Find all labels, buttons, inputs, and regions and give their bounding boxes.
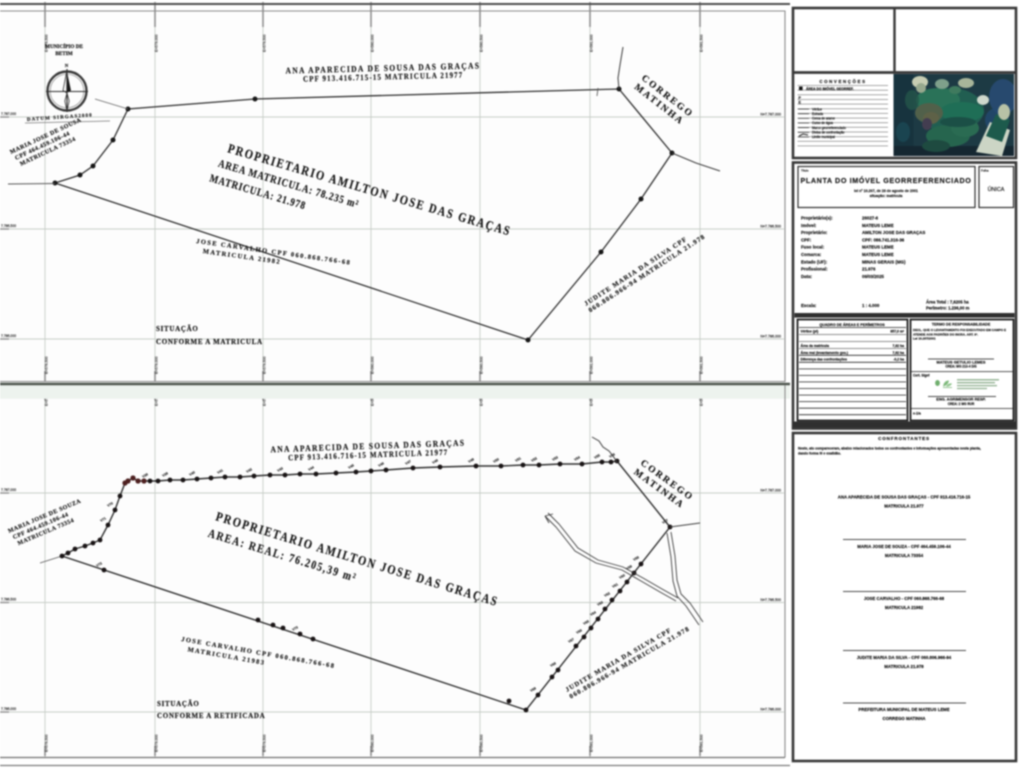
svg-text:E=579.500: E=579.500 <box>263 357 267 375</box>
svg-text:-0,2 ha: -0,2 ha <box>893 357 904 361</box>
svg-text:Imóvel:: Imóvel: <box>801 223 817 228</box>
svg-text:Cert. Sigef: Cert. Sigef <box>913 373 930 377</box>
svg-text:MATRICULA 21.978: MATRICULA 21.978 <box>884 664 924 669</box>
svg-text:E=580.500: E=580.500 <box>480 357 484 375</box>
svg-text:Marco georreferenciado: Marco georreferenciado <box>812 126 846 130</box>
svg-text:JUDITE MARIA DA SILVA - CPF 06: JUDITE MARIA DA SILVA - CPF 060.806.966-… <box>857 655 952 660</box>
svg-text:E=580.000: E=580.000 <box>371 735 375 753</box>
svg-text:Título: Título <box>801 169 809 173</box>
svg-text:E=581.000: E=581.000 <box>590 35 594 53</box>
svg-text:CPF:: CPF: <box>801 237 812 242</box>
svg-text:MATRICULA 21.977: MATRICULA 21.977 <box>884 504 924 509</box>
svg-text:1 : 4.000: 1 : 4.000 <box>862 303 880 308</box>
svg-text:Estado (UF):: Estado (UF): <box>801 259 828 264</box>
svg-text:lei nº 10.267, de 28 de agosto: lei nº 10.267, de 28 de agosto de 2001 <box>854 189 918 193</box>
svg-text:PREFEITURA MUNICIPAL DE MATEUS: PREFEITURA MUNICIPAL DE MATEUS LEME <box>858 707 949 712</box>
svg-text:QUADRO DE ÁREAS E PERÍMETROS: QUADRO DE ÁREAS E PERÍMETROS <box>819 322 885 327</box>
svg-text:MATRICULA 73354: MATRICULA 73354 <box>885 553 924 558</box>
svg-text:CREA: MG 213-4 D/S: CREA: MG 213-4 D/S <box>945 365 976 369</box>
svg-text:E=581.500: E=581.500 <box>700 735 704 753</box>
svg-text:MINAS GERAIS (MG): MINAS GERAIS (MG) <box>862 259 906 264</box>
svg-text:MATEUS LEME: MATEUS LEME <box>862 252 894 257</box>
svg-text:Escala:: Escala: <box>801 303 817 308</box>
svg-text:MATEUS LEME: MATEUS LEME <box>862 223 894 228</box>
svg-text:E=581.000: E=581.000 <box>590 357 594 375</box>
svg-text:ATENDE AOS PADRÕES DO INCRA. A: ATENDE AOS PADRÕES DO INCRA. ART. 9º. <box>913 331 978 336</box>
svg-text:7.786.500: 7.786.500 <box>1 224 16 228</box>
svg-text:Área real (levantamento geo.): Área real (levantamento geo.) <box>801 350 848 355</box>
svg-text:CONFORME A MATRICULA: CONFORME A MATRICULA <box>156 338 263 346</box>
svg-text:Comarca:: Comarca: <box>801 252 822 257</box>
svg-text:Cerca de arame: Cerca de arame <box>812 117 835 121</box>
svg-text:CREA: 2 MG RUR: CREA: 2 MG RUR <box>948 402 975 406</box>
svg-text:dando forma fé e exatidão.: dando forma fé e exatidão. <box>798 452 841 456</box>
svg-text:Perímetro: 1.236,00 m: Perímetro: 1.236,00 m <box>926 306 970 311</box>
svg-text:7.786.000: 7.786.000 <box>1 707 16 711</box>
svg-text:N=7.787.000: N=7.787.000 <box>760 489 781 493</box>
svg-text:CONVENÇÕES: CONVENÇÕES <box>819 79 866 84</box>
svg-text:E=579.000: E=579.000 <box>155 735 159 753</box>
svg-text:7,62 ha: 7,62 ha <box>893 351 905 355</box>
svg-text:BETIM: BETIM <box>55 51 72 57</box>
svg-text:AMILTON JOSE DAS GRAÇAS: AMILTON JOSE DAS GRAÇAS <box>862 230 925 235</box>
svg-text:PLANTA DO IMÓVEL GEORREFERENCI: PLANTA DO IMÓVEL GEORREFERENCIADO <box>800 176 971 185</box>
svg-text:N=7.786.000: N=7.786.000 <box>760 708 781 712</box>
svg-text:7.787.000: 7.787.000 <box>1 112 16 116</box>
svg-text:SITUAÇÃO: SITUAÇÃO <box>156 325 199 333</box>
svg-text:ÚNICA: ÚNICA <box>988 186 1005 193</box>
svg-text:7.786.000: 7.786.000 <box>1 334 16 338</box>
svg-text:e-1/a: e-1/a <box>913 412 921 416</box>
svg-text:E=580.500: E=580.500 <box>480 35 484 53</box>
svg-text:SITUAÇÃO: SITUAÇÃO <box>157 700 200 708</box>
svg-text:E=581.000: E=581.000 <box>590 735 594 753</box>
svg-text:MATEUS GETULIO LEMES: MATEUS GETULIO LEMES <box>937 359 986 364</box>
svg-text:N=7.786.500: N=7.786.500 <box>760 598 781 602</box>
svg-text:E=579.500: E=579.500 <box>263 735 267 753</box>
svg-text:E=581.500: E=581.500 <box>700 357 704 375</box>
svg-text:7.787.000: 7.787.000 <box>1 488 16 492</box>
svg-text:ANA APARECIDA DE SOUSA DAS GRA: ANA APARECIDA DE SOUSA DAS GRAÇAS - CPF … <box>838 495 971 500</box>
svg-text:Data:: Data: <box>801 274 813 279</box>
svg-text:N=7.787.000: N=7.787.000 <box>760 113 781 117</box>
svg-text:7.786.500: 7.786.500 <box>1 598 16 602</box>
svg-text:E=580.000: E=580.000 <box>371 357 375 375</box>
svg-text:7,82 ha: 7,82 ha <box>893 344 905 348</box>
svg-text:TERMO DE RESPONSABILIDADE: TERMO DE RESPONSABILIDADE <box>932 323 991 327</box>
svg-text:E=578.500: E=578.500 <box>45 735 49 753</box>
svg-text:E=579.500: E=579.500 <box>263 35 267 53</box>
svg-text:MARIA JOSE DE SOUZA - CPF 464.: MARIA JOSE DE SOUZA - CPF 464.459.106-44 <box>857 544 951 549</box>
svg-text:Estrada: Estrada <box>812 112 823 116</box>
svg-text:Profissional:: Profissional: <box>801 267 828 272</box>
svg-text:857,0 m²: 857,0 m² <box>890 329 904 333</box>
svg-text:E=579.000: E=579.000 <box>155 357 159 375</box>
svg-text:MATEUS LEME: MATEUS LEME <box>862 245 894 250</box>
svg-text:Área Total : 7,6205 ha: Área Total : 7,6205 ha <box>926 300 969 305</box>
svg-text:situação: matricula: situação: matricula <box>870 194 904 198</box>
svg-text:MUNICÍPIO DE: MUNICÍPIO DE <box>45 42 83 50</box>
svg-text:Fuso local:: Fuso local: <box>801 245 825 250</box>
svg-text:CONFORME A RETIFICADA: CONFORME A RETIFICADA <box>157 712 265 720</box>
svg-text:E=578.500: E=578.500 <box>45 357 49 375</box>
svg-text:21.976: 21.976 <box>862 267 876 272</box>
svg-text:Limite municipal: Limite municipal <box>812 135 835 139</box>
svg-text:E=579.000: E=579.000 <box>155 35 159 53</box>
svg-text:E=581.500: E=581.500 <box>700 35 704 53</box>
svg-text:E=580.500: E=580.500 <box>480 735 484 753</box>
svg-text:Divisa de confrontação: Divisa de confrontação <box>812 131 845 135</box>
svg-text:Proprietário:: Proprietário: <box>801 230 828 235</box>
svg-text:Lei 10.267/2001: Lei 10.267/2001 <box>913 337 936 341</box>
svg-text:Neste, ato compareceram, abaix: Neste, ato compareceram, abaixo relacion… <box>798 447 981 451</box>
svg-text:Vértice: Vértice <box>812 107 822 111</box>
svg-text:CONFRONTANTES: CONFRONTANTES <box>878 436 930 441</box>
svg-text:MATRICULA 21982: MATRICULA 21982 <box>885 605 924 610</box>
svg-text:ÁREA DO IMÓVEL GEORREF.: ÁREA DO IMÓVEL GEORREF. <box>806 86 854 91</box>
svg-text:26027-6: 26027-6 <box>862 216 879 221</box>
svg-text:N=7.786.000: N=7.786.000 <box>760 335 781 339</box>
svg-text:Curso de água: Curso de água <box>812 121 833 125</box>
svg-text:Diferença das confrontações: Diferença das confrontações <box>801 357 848 361</box>
svg-text:09/03/2025: 09/03/2025 <box>862 274 885 279</box>
svg-text:Área da matricula: Área da matricula <box>801 343 830 348</box>
svg-text:CORREGO MATINHA: CORREGO MATINHA <box>883 716 926 721</box>
svg-text:Vértice (pt): Vértice (pt) <box>801 329 819 333</box>
svg-text:N=7.786.500: N=7.786.500 <box>760 225 781 229</box>
svg-text:Folha: Folha <box>981 169 989 173</box>
svg-text:JOSE CARVALHO - CPF 060.868.76: JOSE CARVALHO - CPF 060.868.766-68 <box>864 596 945 601</box>
svg-text:Proprietário(s):: Proprietário(s): <box>801 216 833 221</box>
svg-text:CPF: 086.741.316-36: CPF: 086.741.316-36 <box>862 237 905 242</box>
svg-text:E=580.000: E=580.000 <box>371 35 375 53</box>
